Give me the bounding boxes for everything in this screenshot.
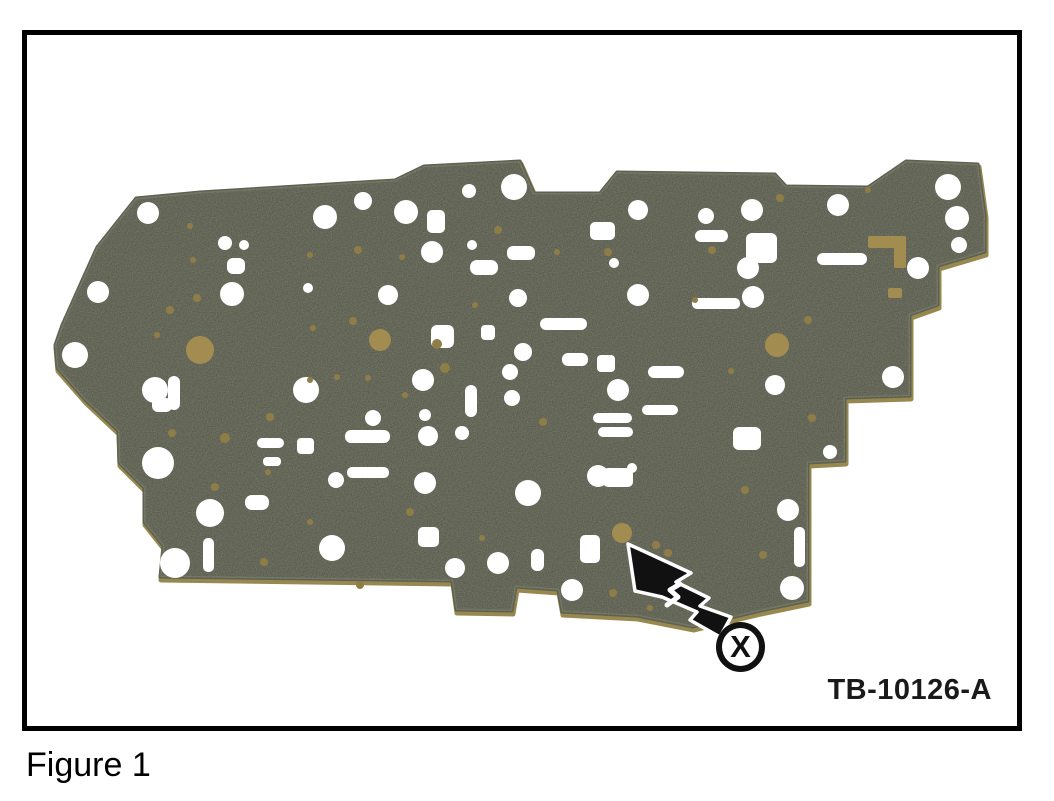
callout-x-label: X — [730, 631, 751, 662]
bulletin-ref-label: TB-10126-A — [700, 674, 992, 707]
callout-x-badge: X — [716, 622, 765, 672]
figure-caption: Figure 1 — [26, 746, 151, 785]
figure-frame — [22, 30, 1022, 731]
bulletin-figure-page: X TB-10126-A Figure 1 — [0, 0, 1054, 801]
